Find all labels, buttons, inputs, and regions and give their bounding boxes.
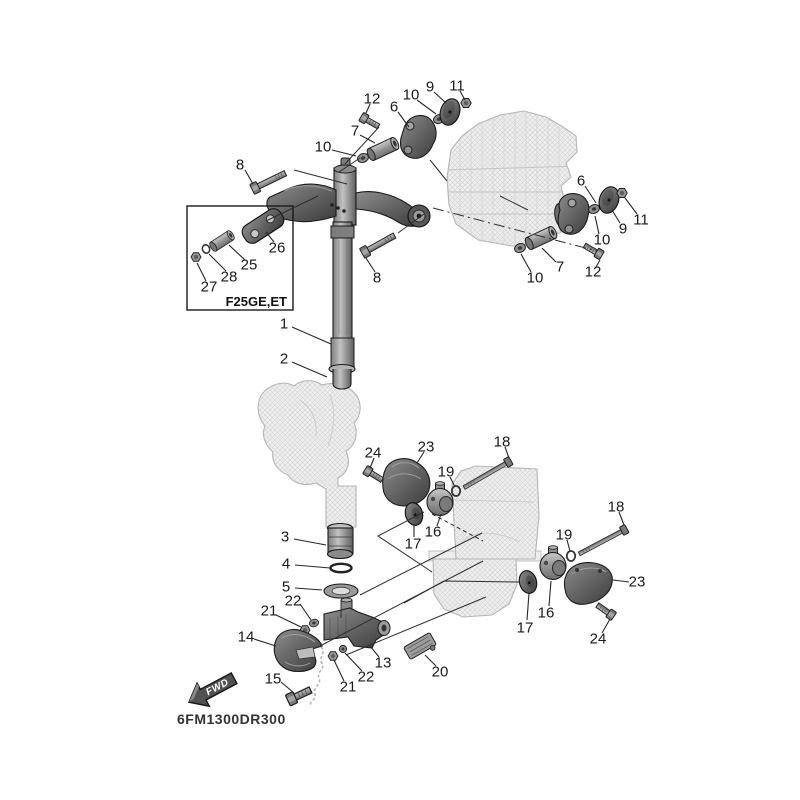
leader-line-7R: [542, 248, 556, 262]
callout-7L[interactable]: 7: [351, 123, 359, 140]
callout-10Rb[interactable]: 10: [527, 270, 544, 287]
callout-27[interactable]: 27: [201, 279, 218, 296]
bolt-24-right: [595, 601, 617, 620]
bushing-2-part: [329, 365, 355, 390]
fwd-arrow-icon: FWD: [183, 667, 240, 714]
leader-line-15: [281, 682, 294, 693]
leader-line-17R: [527, 593, 529, 620]
callout-3[interactable]: 3: [281, 529, 289, 546]
inset-model-label: F25GE,ET: [226, 294, 287, 309]
steering-shaft-part: [331, 222, 354, 368]
mount-16-left: [427, 482, 453, 516]
leader-line-21a: [276, 615, 301, 627]
callout-21b[interactable]: 21: [340, 679, 357, 696]
callout-10Lb[interactable]: 10: [403, 87, 420, 104]
leader-line-2: [292, 362, 327, 377]
bolt-15: [285, 685, 313, 706]
leader-line-6L: [398, 112, 409, 127]
leader-line-22a: [300, 604, 311, 620]
callout-1[interactable]: 1: [280, 316, 288, 333]
callout-14[interactable]: 14: [238, 629, 255, 646]
callout-24L[interactable]: 24: [365, 445, 382, 462]
diagram-stage: F25GE,ET: [0, 0, 800, 800]
callout-13[interactable]: 13: [375, 655, 392, 672]
callout-17L[interactable]: 17: [405, 536, 422, 553]
callout-8R[interactable]: 8: [373, 270, 381, 287]
callout-9L[interactable]: 9: [426, 79, 434, 96]
callout-21a[interactable]: 21: [261, 603, 278, 620]
construction-line: [430, 160, 447, 181]
callout-7R[interactable]: 7: [556, 259, 564, 276]
mount-cover-23-right: [564, 563, 612, 605]
pin-25: [208, 230, 235, 253]
leader-line-4: [295, 565, 330, 568]
callout-11R[interactable]: 11: [633, 212, 649, 229]
callout-6R[interactable]: 6: [577, 173, 585, 190]
leader-line-23R: [613, 580, 629, 582]
callout-19L[interactable]: 19: [438, 464, 455, 481]
damper-9-right: [596, 184, 622, 216]
mount-cover-23-left: [383, 459, 430, 506]
callout-12L[interactable]: 12: [364, 91, 381, 108]
clamp-bracket-outline: [258, 381, 360, 527]
leader-line-3: [294, 539, 326, 545]
upper-mount-left-group: [250, 96, 472, 194]
callout-17R[interactable]: 17: [517, 620, 534, 637]
callout-18R[interactable]: 18: [608, 499, 625, 516]
callout-15[interactable]: 15: [265, 671, 282, 688]
exploded-parts-diagram: F25GE,ET: [0, 0, 800, 800]
plate-20: [404, 632, 439, 662]
nut-11-right: [617, 189, 627, 198]
callout-26[interactable]: 26: [269, 240, 286, 257]
leader-line-14: [254, 639, 276, 646]
bolt-8-right: [359, 231, 397, 259]
callout-24R[interactable]: 24: [590, 631, 607, 648]
callout-2[interactable]: 2: [280, 351, 288, 368]
bolt-8-left: [250, 168, 288, 194]
swivel-bracket-part: [267, 158, 430, 227]
callout-19R[interactable]: 19: [556, 527, 573, 544]
callout-11L[interactable]: 11: [449, 78, 465, 95]
callout-20[interactable]: 20: [432, 664, 449, 681]
nut-11-left: [461, 99, 471, 108]
ring-19-right: [567, 551, 575, 561]
bushing-stack-group: [324, 524, 358, 599]
bolt-18-right: [577, 524, 629, 557]
callout-28[interactable]: 28: [221, 269, 238, 286]
callout-22a[interactable]: 22: [285, 593, 302, 610]
callout-25[interactable]: 25: [241, 257, 258, 274]
callout-10Ra[interactable]: 10: [594, 232, 611, 249]
callout-16L[interactable]: 16: [425, 524, 442, 541]
callout-10La[interactable]: 10: [315, 139, 332, 156]
callout-16R[interactable]: 16: [538, 605, 555, 622]
nut-21-b: [328, 652, 338, 661]
leader-line-8L: [245, 170, 253, 184]
nut-27: [191, 253, 201, 262]
leader-line-7L: [360, 135, 375, 143]
disc-17-right: [517, 569, 539, 596]
callout-12R[interactable]: 12: [585, 264, 602, 281]
leader-line-10La: [332, 150, 356, 156]
leader-line-10Lb: [417, 100, 436, 114]
lower-casing-outline: [429, 466, 541, 617]
drawing-code: 6FM1300DR300: [177, 711, 286, 727]
callout-8L[interactable]: 8: [236, 157, 244, 174]
o-ring-4: [331, 564, 352, 572]
leader-line-16R: [549, 581, 551, 606]
mount-16-right: [540, 546, 566, 580]
callout-23L[interactable]: 23: [418, 439, 435, 456]
pin-7-left: [366, 136, 401, 161]
callout-22b[interactable]: 22: [358, 669, 375, 686]
callout-9R[interactable]: 9: [619, 221, 627, 238]
callout-4[interactable]: 4: [282, 556, 290, 573]
leader-line-9L: [434, 92, 446, 103]
bolt-24-left: [363, 465, 385, 484]
callout-23R[interactable]: 23: [629, 574, 646, 591]
leader-line-1: [292, 327, 331, 344]
leader-line-5: [295, 588, 322, 590]
callout-18L[interactable]: 18: [494, 434, 511, 451]
callout-6L[interactable]: 6: [390, 99, 398, 116]
